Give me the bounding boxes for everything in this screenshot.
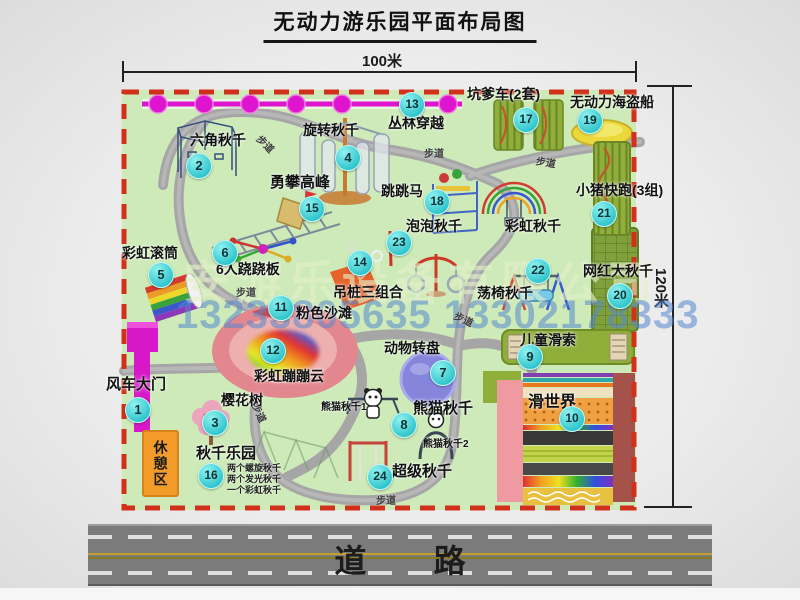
- animal-turntable-icon: [401, 352, 455, 406]
- slide-world-icon: [483, 371, 635, 505]
- watermark-phone: 13233805635 13302178333: [176, 293, 700, 338]
- park-layout-plan: 无动力游乐园平面布局图 100米 120米: [0, 0, 800, 600]
- rest-area-label: 休憩区: [151, 440, 171, 488]
- pig-run-icon: [594, 142, 630, 235]
- rest-area: 休憩区: [142, 430, 179, 497]
